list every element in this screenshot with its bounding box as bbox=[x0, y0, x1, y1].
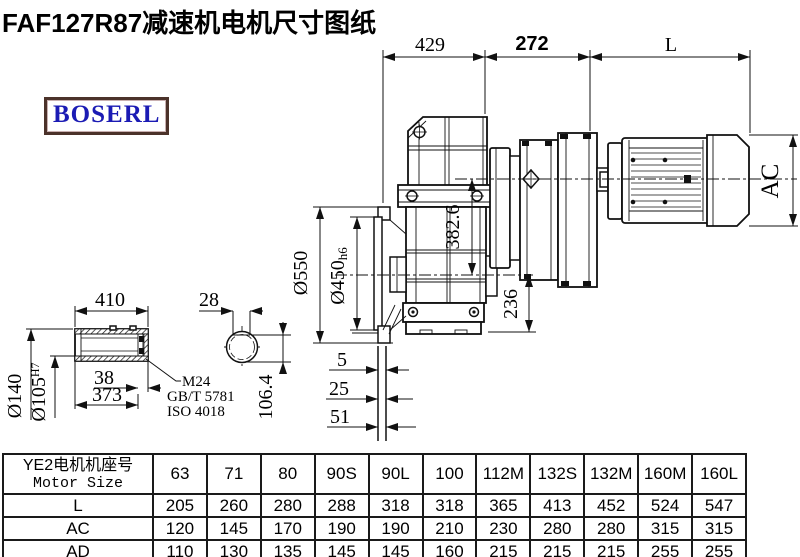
table-cell: 288 bbox=[315, 494, 369, 517]
table-cell: 145 bbox=[207, 517, 261, 540]
dim-5: 5 bbox=[337, 349, 347, 371]
table-cell: 318 bbox=[423, 494, 477, 517]
table-cell: 190 bbox=[369, 517, 423, 540]
table-cell: 130 bbox=[207, 540, 261, 557]
dim-dia140: Ø140 bbox=[4, 374, 26, 418]
dim-410: 410 bbox=[95, 289, 125, 311]
table-cell: 255 bbox=[692, 540, 746, 557]
dim-272: 272 bbox=[515, 33, 548, 55]
dim-373: 373 bbox=[92, 384, 122, 406]
table-header-motor-size: YE2电机机座号 Motor Size bbox=[3, 454, 153, 494]
row-label: L bbox=[3, 494, 153, 517]
dim-L: L bbox=[665, 34, 677, 56]
dimension-ac: AC bbox=[749, 135, 798, 226]
dim-25: 25 bbox=[329, 378, 349, 400]
row-label: AC bbox=[3, 517, 153, 540]
header-cn: YE2电机机座号 bbox=[4, 457, 152, 475]
motor-size-table: YE2电机机座号 Motor Size 63 71 80 90S 90L 100… bbox=[2, 453, 747, 557]
table-cell: 255 bbox=[638, 540, 692, 557]
table-cell: 135 bbox=[261, 540, 315, 557]
table-cell: 120 bbox=[153, 517, 207, 540]
dim-28: 28 bbox=[199, 289, 219, 311]
size-col: 90L bbox=[369, 454, 423, 494]
size-col: 160M bbox=[638, 454, 692, 494]
table-cell: 160 bbox=[423, 540, 477, 557]
dim-dia105: Ø105H7 bbox=[28, 362, 50, 421]
table-cell: 524 bbox=[638, 494, 692, 517]
table-cell: 215 bbox=[530, 540, 584, 557]
table-row-AD: AD 110 130 135 145 145 160 215 215 215 2… bbox=[3, 540, 746, 557]
table-cell: 280 bbox=[530, 517, 584, 540]
table-cell: 190 bbox=[315, 517, 369, 540]
table-cell: 205 bbox=[153, 494, 207, 517]
dim-dia550: Ø550 bbox=[290, 251, 312, 295]
technical-drawing: 429 272 L AC 382.6 236 Ø550 bbox=[0, 0, 800, 460]
table-cell: 365 bbox=[476, 494, 530, 517]
motor-side-view bbox=[600, 135, 749, 226]
size-col: 71 bbox=[207, 454, 261, 494]
dimension-dia450: Ø450h6 bbox=[327, 217, 376, 330]
standard-iso: ISO 4018 bbox=[167, 404, 225, 420]
table-row-AC: AC 120 145 170 190 190 210 230 280 280 3… bbox=[3, 517, 746, 540]
dimension-gaps: 5 25 51 bbox=[326, 349, 416, 428]
table-cell: 280 bbox=[584, 517, 638, 540]
size-col: 112M bbox=[476, 454, 530, 494]
dim-ac: AC bbox=[757, 164, 784, 199]
table-cell: 110 bbox=[153, 540, 207, 557]
table-cell: 318 bbox=[369, 494, 423, 517]
size-col: 100 bbox=[423, 454, 477, 494]
table-cell: 215 bbox=[584, 540, 638, 557]
size-col: 132S bbox=[530, 454, 584, 494]
page: FAF127R87减速机电机尺寸图纸 BOSERL bbox=[0, 0, 800, 557]
table-cell: 215 bbox=[476, 540, 530, 557]
table-header-row: YE2电机机座号 Motor Size 63 71 80 90S 90L 100… bbox=[3, 454, 746, 494]
size-col: 63 bbox=[153, 454, 207, 494]
standard-gb: GB/T 5781 bbox=[167, 389, 235, 405]
table-cell: 452 bbox=[584, 494, 638, 517]
table-cell: 547 bbox=[692, 494, 746, 517]
size-col: 160L bbox=[692, 454, 746, 494]
table-cell: 315 bbox=[638, 517, 692, 540]
dim-382: 382.6 bbox=[442, 205, 464, 250]
size-col: 80 bbox=[261, 454, 315, 494]
dim-dia450: Ø450h6 bbox=[327, 247, 350, 305]
header-en: Motor Size bbox=[4, 475, 152, 492]
table-cell: 315 bbox=[692, 517, 746, 540]
table-cell: 170 bbox=[261, 517, 315, 540]
output-flange bbox=[352, 207, 406, 441]
table-cell: 413 bbox=[530, 494, 584, 517]
thread-callout: M24 bbox=[182, 374, 211, 390]
table-cell: 230 bbox=[476, 517, 530, 540]
size-col: 90S bbox=[315, 454, 369, 494]
shaft-end-view bbox=[224, 311, 261, 368]
size-col: 132M bbox=[584, 454, 638, 494]
table-cell: 280 bbox=[261, 494, 315, 517]
dim-429: 429 bbox=[415, 34, 445, 56]
table-cell: 260 bbox=[207, 494, 261, 517]
coupling-housing bbox=[490, 133, 608, 287]
row-label: AD bbox=[3, 540, 153, 557]
table-row-L: L 205 260 280 288 318 318 365 413 452 52… bbox=[3, 494, 746, 517]
table-cell: 210 bbox=[423, 517, 477, 540]
table-cell: 145 bbox=[369, 540, 423, 557]
dim-106: 106.4 bbox=[255, 375, 277, 420]
table-cell: 145 bbox=[315, 540, 369, 557]
dim-51: 51 bbox=[330, 406, 350, 428]
hollow-shaft-detail bbox=[75, 326, 148, 361]
dim-236: 236 bbox=[500, 289, 522, 319]
